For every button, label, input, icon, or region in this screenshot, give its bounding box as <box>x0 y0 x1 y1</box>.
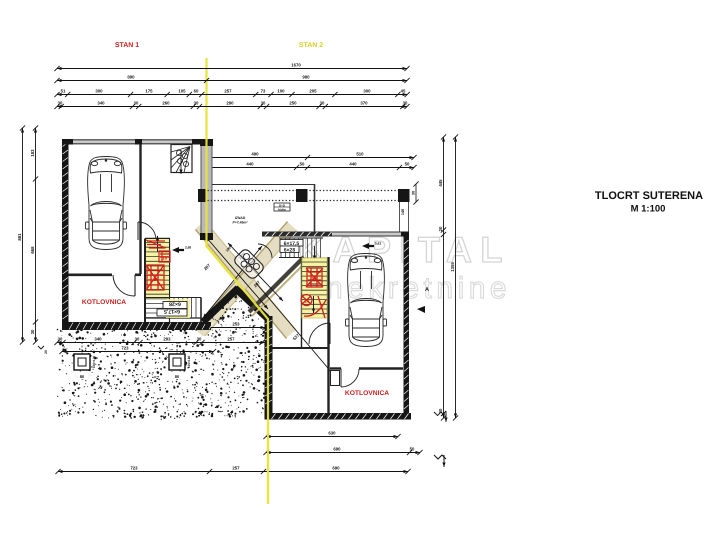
svg-text:20: 20 <box>44 350 48 354</box>
svg-text:30: 30 <box>320 101 325 106</box>
svg-text:440: 440 <box>246 162 254 167</box>
svg-text:205: 205 <box>309 89 317 94</box>
svg-text:253: 253 <box>232 322 240 327</box>
svg-text:300: 300 <box>95 89 103 94</box>
svg-text:30: 30 <box>134 101 139 106</box>
svg-text:6×17,5: 6×17,5 <box>164 308 180 314</box>
svg-text:STAN 2: STAN 2 <box>299 42 323 49</box>
svg-text:257: 257 <box>227 337 235 342</box>
svg-text:293: 293 <box>163 337 171 342</box>
svg-text:100×100: 100×100 <box>92 356 96 369</box>
svg-text:175: 175 <box>145 89 153 94</box>
svg-text:440: 440 <box>349 162 357 167</box>
svg-text:30: 30 <box>412 191 416 195</box>
svg-text:140: 140 <box>401 209 405 215</box>
svg-text:50: 50 <box>405 162 410 167</box>
svg-text:30: 30 <box>135 337 140 342</box>
svg-text:183: 183 <box>30 149 35 157</box>
svg-text:1355: 1355 <box>450 262 455 272</box>
svg-text:445: 445 <box>438 179 443 187</box>
svg-text:300: 300 <box>363 89 371 94</box>
svg-text:890: 890 <box>127 75 135 80</box>
svg-text:30: 30 <box>194 101 199 106</box>
svg-text:6×17,5: 6×17,5 <box>284 241 300 247</box>
svg-text:45: 45 <box>401 89 406 94</box>
svg-text:TLOCRT SUTERENA: TLOCRT SUTERENA <box>595 190 703 202</box>
svg-text:980: 980 <box>302 75 310 80</box>
svg-text:370: 370 <box>360 101 368 106</box>
svg-text:IZNAD: IZNAD <box>235 216 246 220</box>
svg-text:490: 490 <box>251 152 259 157</box>
svg-text:881: 881 <box>17 233 22 241</box>
svg-text:723: 723 <box>130 466 138 471</box>
svg-text:30: 30 <box>30 329 35 334</box>
svg-text:51: 51 <box>61 89 66 94</box>
svg-text:A: A <box>425 287 429 293</box>
svg-text:STAN 1: STAN 1 <box>115 42 139 49</box>
svg-text:P=7,45m²: P=7,45m² <box>233 221 249 225</box>
svg-text:30: 30 <box>403 101 408 106</box>
svg-text:hidro: hidro <box>278 208 286 212</box>
svg-text:50: 50 <box>300 162 305 167</box>
svg-text:630: 630 <box>328 431 336 436</box>
svg-text:80: 80 <box>80 374 85 379</box>
svg-text:250: 250 <box>289 101 297 106</box>
svg-text:690: 690 <box>332 466 340 471</box>
svg-text:KOTLOVNICA: KOTLOVNICA <box>82 299 126 306</box>
svg-text:M 1:100: M 1:100 <box>631 204 666 215</box>
svg-text:257: 257 <box>224 89 232 94</box>
svg-text:290: 290 <box>226 101 234 106</box>
svg-text:28: 28 <box>153 277 159 283</box>
svg-text:100: 100 <box>277 89 285 94</box>
svg-text:690: 690 <box>333 447 341 452</box>
svg-text:18: 18 <box>311 276 317 281</box>
svg-text:60: 60 <box>194 89 199 94</box>
svg-text:340: 340 <box>94 337 102 342</box>
svg-text:80: 80 <box>175 374 180 379</box>
svg-text:30: 30 <box>261 101 266 106</box>
svg-text:723: 723 <box>121 346 129 351</box>
svg-text:510: 510 <box>356 152 364 157</box>
svg-text:30: 30 <box>197 337 202 342</box>
svg-text:1670: 1670 <box>291 63 301 68</box>
svg-text:100×100: 100×100 <box>187 356 191 369</box>
svg-text:KOTLOVNICA: KOTLOVNICA <box>345 390 389 397</box>
svg-text:28: 28 <box>304 299 310 304</box>
svg-text:50: 50 <box>410 447 415 452</box>
svg-text:105: 105 <box>178 89 186 94</box>
svg-text:2,68: 2,68 <box>185 246 191 250</box>
svg-text:260: 260 <box>162 101 170 106</box>
svg-text:20: 20 <box>438 226 443 231</box>
svg-text:5,61: 5,61 <box>375 242 381 246</box>
svg-text:18: 18 <box>162 256 168 261</box>
svg-text:340: 340 <box>97 101 105 106</box>
svg-text:6×28: 6×28 <box>169 301 181 307</box>
svg-text:73: 73 <box>261 89 266 94</box>
svg-text:6×28: 6×28 <box>284 248 295 254</box>
svg-text:257: 257 <box>232 466 240 471</box>
svg-text:668: 668 <box>30 246 35 254</box>
svg-text:30: 30 <box>58 337 63 342</box>
svg-text:30: 30 <box>58 101 63 106</box>
